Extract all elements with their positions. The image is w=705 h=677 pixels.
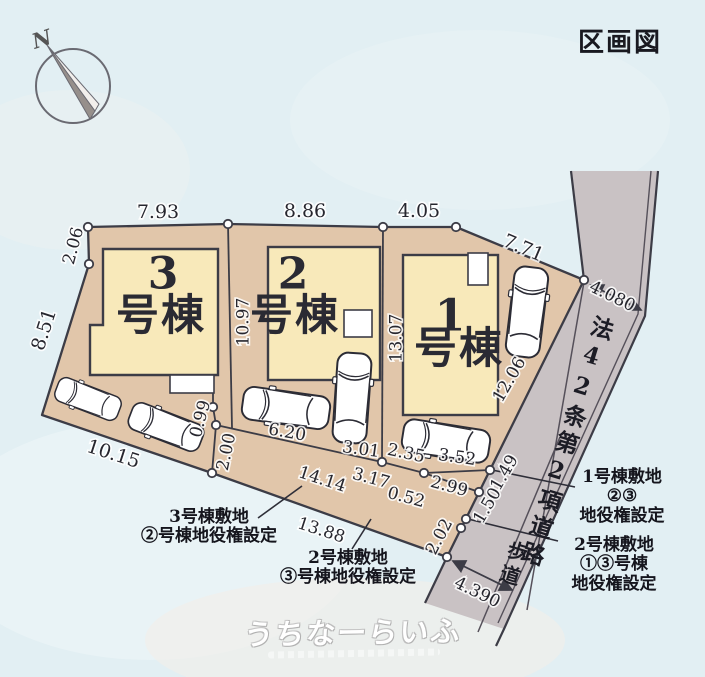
note-line: 2号棟敷地 [262, 549, 434, 568]
building-3-name: 号棟 [116, 291, 206, 341]
plot-map: 3 号棟 2 号棟 1 号棟 [0, 0, 705, 677]
dim-top-lot1: 4.05 [398, 200, 440, 222]
watermark: うちなーらいふ [226, 608, 480, 654]
note-line: 2号棟敷地 [548, 536, 680, 555]
note-line: 地役権設定 [548, 575, 680, 594]
note-line: ③号棟地役権設定 [262, 568, 434, 587]
dim-left-slant: 8.51 [27, 306, 61, 353]
note-line: 地役権設定 [556, 507, 688, 526]
note-line: ②③ [556, 487, 688, 506]
building-1-name: 号棟 [414, 324, 504, 374]
dim-divider-3-2: 10.97 [234, 298, 254, 347]
note-line: ①③号棟 [548, 555, 680, 574]
dim-top-lot3: 7.93 [137, 201, 179, 223]
note-lot3-easement: 3号棟敷地 ②号棟地役権設定 [118, 508, 300, 547]
note-lot2-easement: 2号棟敷地 ③号棟地役権設定 [262, 549, 434, 588]
note-lot1-easement: 1号棟敷地 ②③ 地役権設定 [556, 468, 688, 526]
note-line: 1号棟敷地 [556, 468, 688, 487]
note-line: ②号棟地役権設定 [118, 527, 300, 546]
building-3-porch [170, 375, 214, 393]
dim-top-lot2: 8.86 [284, 200, 326, 222]
note-line: 3号棟敷地 [118, 508, 300, 527]
note-lot2-easement-right: 2号棟敷地 ①③号棟 地役権設定 [548, 536, 680, 594]
building-2-name: 号棟 [250, 291, 340, 341]
building-1-porch [468, 253, 488, 285]
dim-divider-2-1: 13.07 [387, 314, 407, 363]
page-title: 区画図 [578, 22, 662, 59]
building-2-porch [344, 310, 372, 337]
divider-lot2-lot1 [382, 227, 383, 462]
